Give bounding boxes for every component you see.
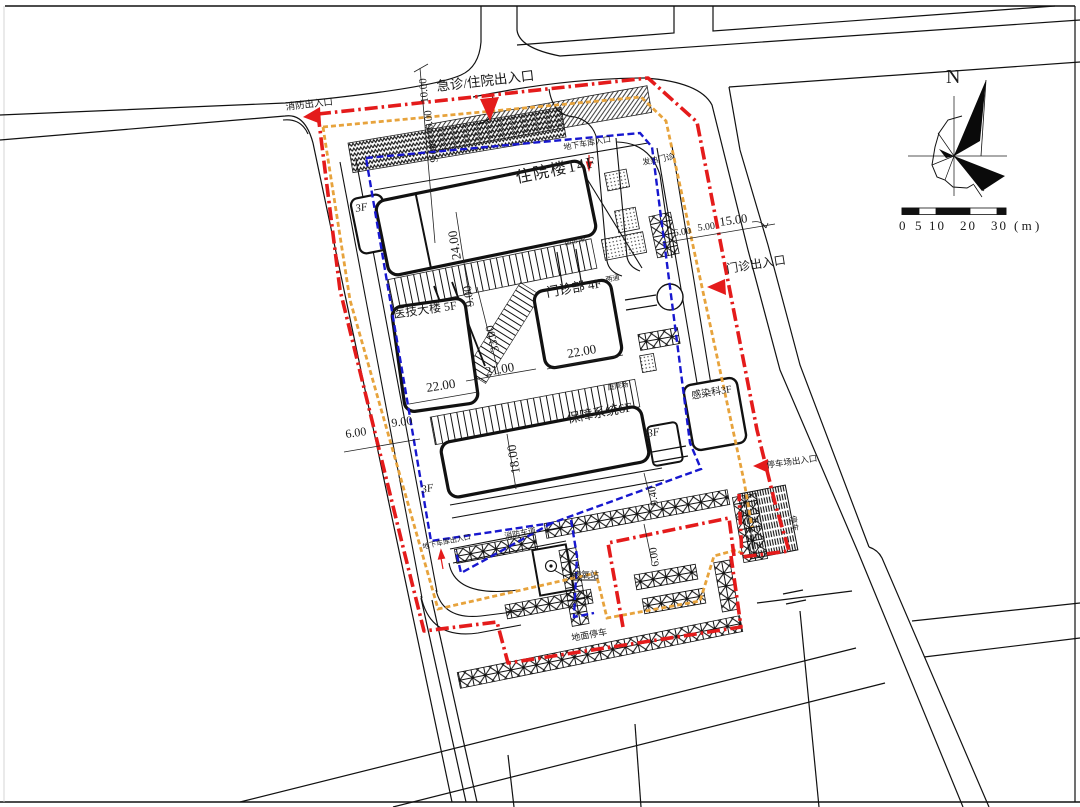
svg-text:30: 30 [991,218,1008,233]
svg-text:6.00: 6.00 [344,424,367,441]
svg-text:( m ): ( m ) [1014,218,1039,233]
svg-text:3F: 3F [645,426,660,440]
svg-text:0: 0 [899,218,906,233]
svg-text:液氧站: 液氧站 [572,569,599,580]
svg-text:5: 5 [915,218,922,233]
svg-text:3F: 3F [419,482,434,496]
svg-text:9.00: 9.00 [427,142,441,163]
svg-text:3F: 3F [353,201,368,215]
svg-text:9.00: 9.00 [390,413,413,430]
svg-text:6.00: 6.00 [422,109,436,130]
svg-text:10.00: 10.00 [417,77,431,103]
svg-text:20: 20 [960,218,977,233]
svg-text:N: N [946,66,960,88]
svg-text:10: 10 [929,218,946,233]
